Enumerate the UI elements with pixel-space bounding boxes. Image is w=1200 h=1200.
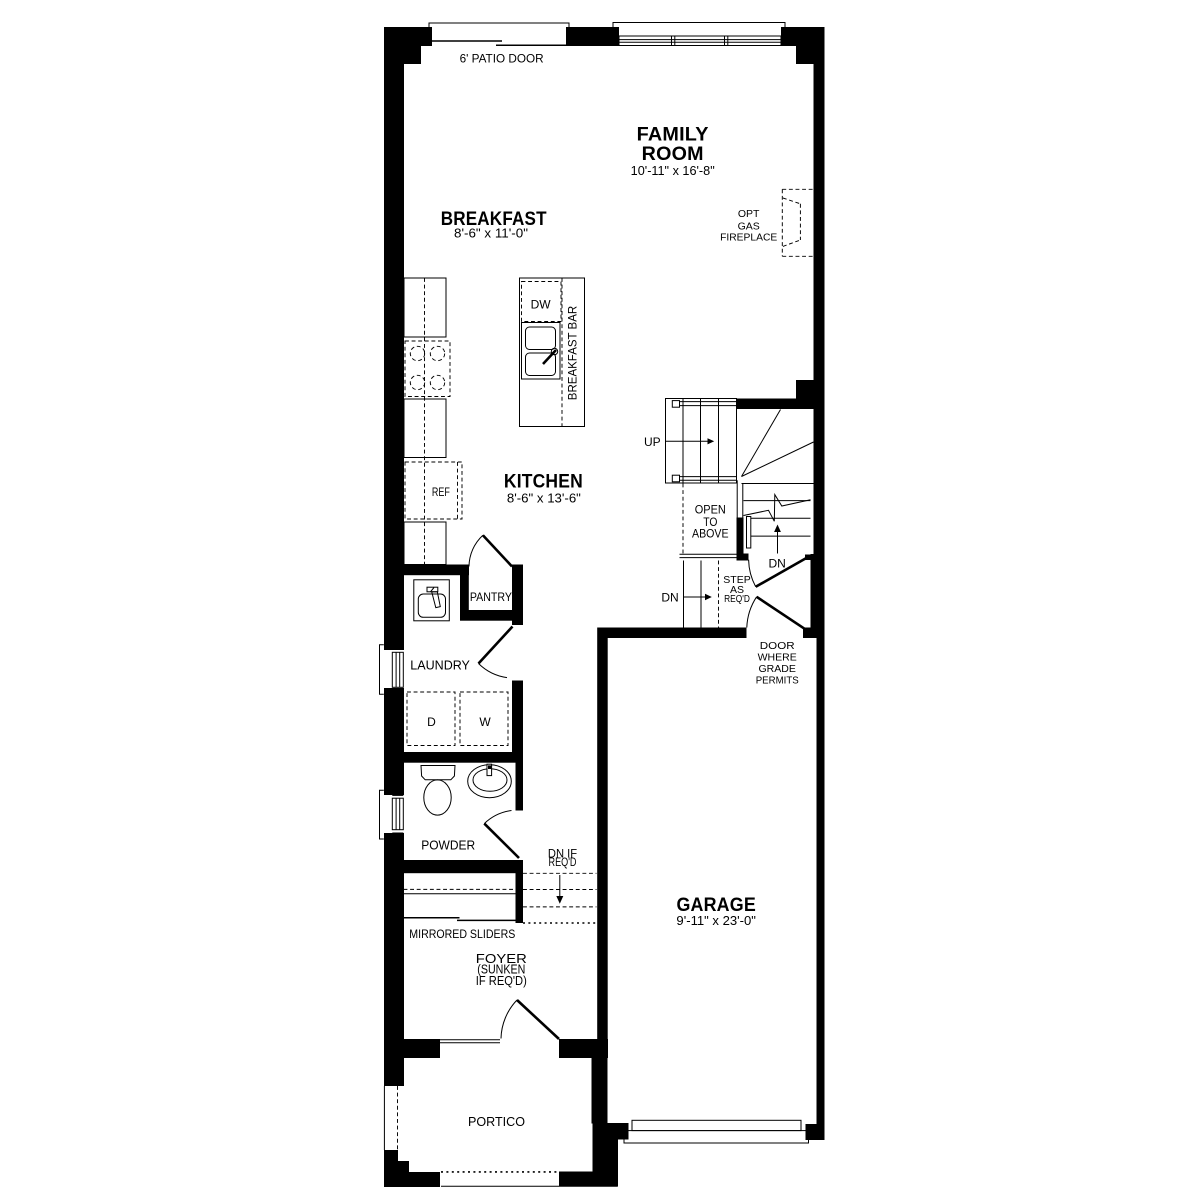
svg-text:UP: UP [644, 435, 661, 449]
svg-text:KITCHEN: KITCHEN [504, 471, 583, 493]
svg-text:6' PATIO DOOR: 6' PATIO DOOR [460, 52, 544, 66]
svg-text:REF: REF [432, 485, 450, 499]
svg-text:BREAKFAST BAR: BREAKFAST BAR [568, 306, 580, 400]
svg-text:WHERE: WHERE [758, 652, 797, 664]
svg-text:FIREPLACE: FIREPLACE [720, 232, 777, 244]
svg-text:PERMITS: PERMITS [756, 675, 799, 687]
svg-text:D: D [427, 715, 436, 729]
svg-text:10'-11" x 16'-8": 10'-11" x 16'-8" [631, 164, 715, 178]
svg-text:MIRRORED SLIDERS: MIRRORED SLIDERS [409, 927, 515, 941]
svg-text:GARAGE: GARAGE [676, 894, 756, 916]
svg-text:POWDER: POWDER [421, 837, 475, 852]
svg-text:GRADE: GRADE [759, 663, 796, 675]
svg-text:DN: DN [661, 591, 678, 605]
svg-text:REQ'D: REQ'D [724, 593, 750, 605]
svg-text:OPT: OPT [738, 208, 760, 220]
svg-text:9'-11" x 23'-0": 9'-11" x 23'-0" [676, 914, 756, 928]
svg-text:DW: DW [531, 297, 552, 311]
svg-text:REQ'D: REQ'D [549, 857, 577, 869]
svg-text:DOOR: DOOR [760, 640, 795, 652]
svg-text:PANTRY: PANTRY [470, 590, 512, 604]
svg-text:ABOVE: ABOVE [692, 527, 729, 541]
svg-text:LAUNDRY: LAUNDRY [410, 657, 470, 672]
svg-text:W: W [479, 715, 491, 729]
svg-text:DN: DN [769, 557, 786, 571]
svg-text:8'-6" x 13'-6": 8'-6" x 13'-6" [507, 492, 581, 506]
svg-text:PORTICO: PORTICO [468, 1114, 525, 1129]
svg-text:ROOM: ROOM [642, 143, 704, 165]
svg-text:IF REQ'D): IF REQ'D) [476, 973, 527, 988]
svg-text:8'-6" x 11'-0": 8'-6" x 11'-0" [454, 227, 528, 241]
